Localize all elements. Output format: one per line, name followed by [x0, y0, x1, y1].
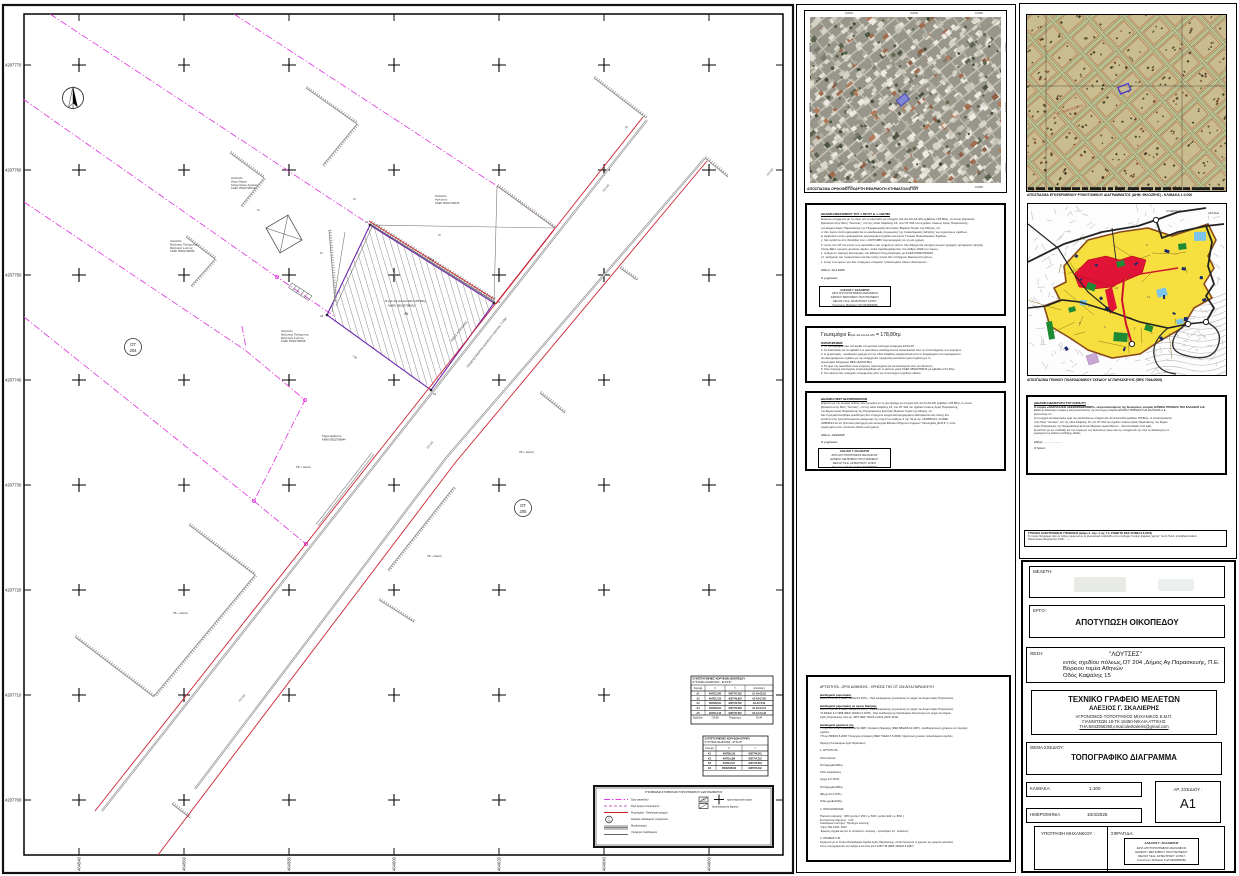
svg-text:ΣΥΣΤΗΜΑ ΑΝΑΦΟΡΑΣ - ΕΓΣΑ 87: ΣΥΣΤΗΜΑ ΑΝΑΦΟΡΑΣ - ΕΓΣΑ 87	[693, 680, 733, 684]
svg-text:Περίμετρος: Περίμετρος	[729, 717, 742, 720]
svg-text:464540: 464540	[77, 856, 82, 871]
svg-text:464711,146: 464711,146	[709, 712, 722, 715]
svg-text:4207747,367: 4207747,367	[728, 712, 742, 715]
svg-text:ΚΑΕΚ 05022708044: ΚΑΕΚ 05022708044	[322, 437, 346, 441]
svg-text:Χ5 + πιλοτή: Χ5 + πιλοτή	[296, 465, 311, 469]
svg-text:Μανδρότοιχος: Μανδρότοιχος	[631, 825, 647, 828]
svg-text:Π.(Α1-Α2-Α3-Α4-Α5)=178,80τμ: Π.(Α1-Α2-Α3-Α4-Α5)=178,80τμ	[385, 299, 426, 303]
svg-text:ΑΓ.ΙΩΑΝΝΗΣ: ΑΓ.ΙΩΑΝΝΗΣ	[1166, 209, 1182, 213]
svg-text:Α2-Α3=17,80: Α2-Α3=17,80	[752, 697, 766, 700]
svg-text:464560: 464560	[182, 856, 187, 871]
svg-text:464660: 464660	[707, 856, 712, 871]
svg-text:ΚΑΕΚ 05022708013: ΚΑΕΚ 05022708013	[231, 186, 256, 190]
svg-text:ΠΧ.ΟΔ.: ΠΧ.ΟΔ.	[602, 183, 611, 193]
svg-text:ΟΔΟΣ ΚΑΨΑΛΗΣ: ΟΔΟΣ ΚΑΨΑΛΗΣ	[450, 320, 469, 342]
svg-text:Μεζήνικας Πολύχρονος: Μεζήνικας Πολύχρονος	[281, 332, 309, 336]
svg-text:Α5-Α1=10,46: Α5-Α1=10,46	[752, 712, 766, 715]
svg-text:Α3-Α4=5,06: Α3-Α4=5,06	[753, 702, 766, 705]
svg-text:Α1-Α2=20,02: Α1-Α2=20,02	[752, 693, 766, 696]
svg-text:4207770: 4207770	[5, 63, 22, 68]
svg-text:464600: 464600	[392, 856, 397, 871]
svg-text:464640: 464640	[602, 856, 607, 871]
svg-text:ΣΥΝΤΕΤΑΓΜΕΝΕΣ ΚΟΡΥΦΩΝ ΟΙΚΟΠΕΔΟ: ΣΥΝΤΕΤΑΓΜΕΝΕΣ ΚΟΡΥΦΩΝ ΟΙΚΟΠΕΔΟΥ	[693, 676, 746, 680]
svg-text:45: 45	[257, 209, 260, 212]
svg-text:Ζάχου Μαρία: Ζάχου Μαρία	[231, 179, 247, 183]
svg-text:4207750: 4207750	[5, 273, 22, 278]
svg-text:Αριθμός οικοδομικού τετραγώνου: Αριθμός οικοδομικού τετραγώνου	[631, 818, 669, 821]
svg-text:4207760: 4207760	[5, 168, 22, 173]
svg-text:A1: A1	[365, 220, 369, 224]
svg-text:Ρυμοτομική - Οικοδομική γραμμή: Ρυμοτομική - Οικοδομική γραμμή	[631, 812, 668, 815]
svg-text:ΥΠΟΜΝΗΜΑ ΣΥΜΒΟΛΩΝ ΤΟΠΟΓΡΑΦΙΚΟΥ: ΥΠΟΜΝΗΜΑ ΣΥΜΒΟΛΩΝ ΤΟΠΟΓΡΑΦΙΚΟΥ ΔΙΑΓΡΑΜΜΑ…	[645, 790, 723, 794]
svg-text:45: 45	[438, 234, 441, 237]
svg-text:4207746,362: 4207746,362	[728, 697, 742, 700]
svg-text:45: 45	[625, 126, 628, 129]
svg-text:ΟΤ: ΟΤ	[520, 503, 526, 508]
svg-text:4207747,262: 4207747,262	[728, 693, 742, 696]
svg-text:464728,811: 464728,811	[709, 702, 722, 705]
svg-text:Χ5 + πιλοτή: Χ5 + πιλοτή	[173, 611, 188, 615]
svg-text:Α4-Α5=12,54: Α4-Α5=12,54	[752, 707, 766, 710]
svg-text:Εμβαδόν: Εμβαδόν	[693, 717, 703, 720]
svg-text:Οικόπεδο: Οικόπεδο	[281, 329, 293, 333]
svg-text:Καλαμπαλίκη Αγγελική: Καλαμπαλίκη Αγγελική	[231, 183, 258, 187]
svg-text:10: 10	[1115, 286, 1119, 290]
svg-text:ΠΛ.ΟΔ.: ΠΛ.ΟΔ.	[766, 167, 775, 177]
svg-text:Όρια όμορων ιδιοκτησιών: Όρια όμορων ιδιοκτησιών	[630, 805, 660, 808]
svg-text:4207740,563: 4207740,563	[728, 707, 742, 710]
svg-text:A3: A3	[433, 392, 437, 396]
svg-text:464712,345: 464712,345	[709, 693, 722, 696]
svg-text:ΠΧ.ΟΔ.: ΠΧ.ΟΔ.	[426, 440, 435, 450]
svg-text:Όριο οικοπέδου: Όριο οικοπέδου	[630, 799, 649, 802]
svg-text:τριγωνομετρικό σημείο: τριγωνομετρικό σημείο	[727, 799, 753, 802]
svg-text:ΔΡ2: ΔΡ2	[701, 799, 706, 802]
svg-text:ΚΑΕΚ 05022708018: ΚΑΕΚ 05022708018	[281, 339, 306, 343]
svg-text:Χρονοσήμανση βορείου: Χρονοσήμανση βορείου	[712, 806, 739, 809]
svg-text:464728,811: 464728,811	[709, 707, 722, 710]
svg-text:11: 11	[1147, 295, 1150, 299]
svg-text:ΑΙΓΑΛΕΩ: ΑΙΓΑΛΕΩ	[1208, 211, 1219, 215]
svg-text:Κορυφή: Κορυφή	[694, 687, 703, 690]
svg-text:4207730: 4207730	[5, 483, 22, 488]
svg-text:464620: 464620	[497, 856, 502, 871]
svg-text:4207740,762: 4207740,762	[728, 702, 742, 705]
svg-text:4207740: 4207740	[5, 378, 22, 383]
svg-text:Οικόπεδο: Οικόπεδο	[231, 176, 243, 180]
svg-text:Μεζήνικας Πολύχρονος: Μεζήνικας Πολύχρονος	[170, 242, 198, 246]
svg-text:4207744,541: 4207744,541	[748, 753, 762, 756]
svg-text:4207673,342: 4207673,342	[748, 767, 762, 770]
svg-text:464580: 464580	[287, 856, 292, 871]
svg-text:4207742,363: 4207742,363	[748, 762, 762, 765]
svg-text:ΚΑΕΚ 05022708016: ΚΑΕΚ 05022708016	[388, 304, 416, 308]
svg-text:ΚΑΕΚ 05022708015: ΚΑΕΚ 05022708015	[435, 201, 460, 205]
svg-text:205: 205	[520, 509, 528, 514]
svg-text:Απόσταση: Απόσταση	[753, 687, 765, 690]
svg-text:A5: A5	[320, 314, 324, 318]
svg-text:45: 45	[320, 252, 323, 255]
svg-text:7,08: 7,08	[351, 354, 358, 361]
svg-text:2Ν: 2Ν	[404, 312, 409, 316]
svg-text:ΠΧ.ΟΔ.: ΠΧ.ΟΔ.	[238, 693, 247, 703]
svg-text:Μεζήνικας Ιωάννης: Μεζήνικας Ιωάννης	[170, 246, 193, 250]
svg-text:464731,123: 464731,123	[709, 697, 722, 700]
svg-text:Μεζήνικας Ιωάννης: Μεζήνικας Ιωάννης	[281, 336, 304, 340]
svg-text:464713,127: 464713,127	[723, 762, 736, 765]
svg-text:ΣΥΣΤΗΜΑ ΑΝΑΦΟΡΑΣ - ΕΓΣΑ 87: ΣΥΣΤΗΜΑ ΑΝΑΦΟΡΑΣ - ΕΓΣΑ 87	[705, 741, 743, 744]
svg-text:204: 204	[130, 348, 138, 353]
svg-text:Οικόπεδο: Οικόπεδο	[170, 239, 182, 243]
svg-text:464708,139: 464708,139	[723, 753, 736, 756]
svg-text:178,80: 178,80	[711, 717, 719, 720]
svg-text:4207747,252: 4207747,252	[748, 757, 762, 760]
svg-text:ΣΥΝΤΕΤΑΓΜΕΝΕΣ ΚΟΡΥΦΩΝ ΚΤΙΡΙΟΥ: ΣΥΝΤΕΤΑΓΜΕΝΕΣ ΚΟΡΥΦΩΝ ΚΤΙΡΙΟΥ	[705, 737, 751, 740]
svg-text:ΟΤ: ΟΤ	[130, 342, 136, 347]
svg-text:Αγνώστου: Αγνώστου	[435, 197, 448, 201]
svg-text:4207700: 4207700	[5, 798, 22, 803]
svg-text:05022045916: 05022045916	[722, 767, 737, 770]
svg-text:55,44: 55,44	[756, 717, 763, 720]
svg-text:Κορυφή: Κορυφή	[705, 747, 714, 750]
svg-text:464716,389: 464716,389	[723, 757, 736, 760]
svg-text:4207720: 4207720	[5, 588, 22, 593]
svg-text:Χ5 + πιλοτή: Χ5 + πιλοτή	[427, 554, 442, 558]
svg-text:Χέρσο ακάλυπτο: Χέρσο ακάλυπτο	[322, 434, 342, 438]
svg-text:Οικόπεδο: Οικόπεδο	[435, 194, 447, 198]
svg-text:Υψόμετρα πεζοδρομίου: Υψόμετρα πεζοδρομίου	[631, 831, 658, 834]
svg-text:Χ5 + πιλοτή: Χ5 + πιλοτή	[519, 450, 534, 454]
svg-text:45: 45	[353, 198, 356, 201]
svg-text:4207710: 4207710	[5, 693, 22, 698]
svg-text:ΚΑΕΚ 05022708048: ΚΑΕΚ 05022708048	[170, 249, 195, 253]
